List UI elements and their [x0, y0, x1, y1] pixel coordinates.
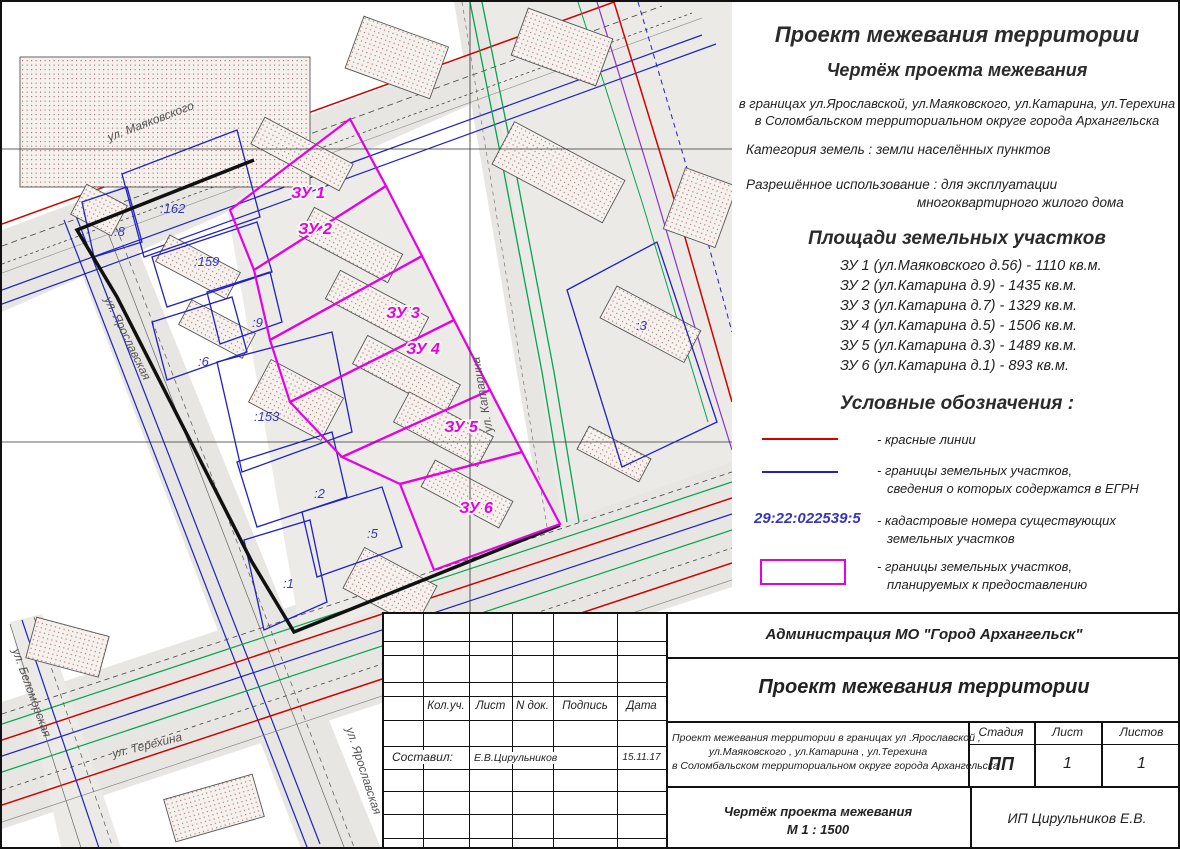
col-header-kol: Кол.уч. — [423, 700, 469, 712]
cadastral-label-3: :3 — [636, 318, 648, 333]
legend-magenta-swatch — [760, 559, 846, 585]
project-desc-2: ул.Маяковского , ул.Катарина , ул.Терехи… — [672, 746, 964, 758]
project-title: Проект межевания территории — [666, 676, 1180, 699]
compiled-label: Составил: — [390, 750, 455, 764]
col-header-list: Лист — [469, 700, 512, 712]
firm-name: ИП Цирульников Е.В. — [972, 810, 1180, 826]
legend-cadastral-sample: 29:22:022539:5 — [754, 510, 861, 527]
legend-cadastral-label-2: земельных участков — [887, 531, 1015, 546]
legend-heading: Условные обозначения : — [732, 393, 1180, 415]
area-item-3: ЗУ 3 (ул.Катарина д.7) - 1329 кв.м. — [840, 298, 1077, 314]
permitted-use-line1: Разрешённое использование : для эксплуат… — [746, 177, 1057, 192]
sheets-value: 1 — [1101, 755, 1180, 773]
sheets-label: Листов — [1101, 725, 1180, 739]
plot-label-zu6: ЗУ 6 — [459, 500, 493, 517]
boundaries-line2: в Соломбальском территориальном округе г… — [732, 113, 1180, 128]
legend-blue-label-2: сведения о которых содержатся в ЕГРН — [887, 481, 1139, 496]
plot-label-zu2: ЗУ 2 — [298, 221, 332, 238]
legend-red-line-swatch — [762, 438, 838, 440]
area-item-1: ЗУ 1 (ул.Маяковского д.56) - 1110 кв.м. — [840, 258, 1102, 274]
drawing-name: Чертёж проекта межевания — [666, 804, 970, 819]
plot-label-zu1: ЗУ 1 — [291, 185, 325, 202]
info-panel: Проект межевания территории Чертёж проек… — [732, 2, 1180, 612]
boundaries-line1: в границах ул.Ярославской, ул.Маяковског… — [732, 96, 1180, 111]
cadastral-label-6: :6 — [198, 354, 210, 369]
compiled-name: Е.В.Цирульников — [472, 752, 559, 764]
legend-blue-label-1: - границы земельных участков, — [877, 463, 1072, 478]
project-desc-3: в Соломбальском территориальном округе г… — [672, 760, 964, 772]
title-block: Кол.уч. Лист N док. Подпись Дата Состави… — [382, 612, 1180, 849]
legend-blue-line-swatch — [762, 471, 838, 473]
sheet-value: 1 — [1034, 755, 1101, 773]
area-item-4: ЗУ 4 (ул.Катарина д.5) - 1506 кв.м. — [840, 318, 1077, 334]
plot-label-zu5: ЗУ 5 — [444, 419, 479, 436]
cadastral-label-162: :162 — [160, 201, 186, 216]
cadastral-label-1: :1 — [283, 576, 294, 591]
col-header-sign: Подпись — [553, 700, 617, 712]
cadastral-label-153: :153 — [254, 409, 280, 424]
page-subtitle: Чертёж проекта межевания — [732, 60, 1180, 81]
area-item-5: ЗУ 5 (ул.Катарина д.3) - 1489 кв.м. — [840, 338, 1077, 354]
page-title: Проект межевания территории — [732, 22, 1180, 48]
col-header-date: Дата — [617, 700, 666, 712]
cadastral-label-9: :9 — [252, 315, 263, 330]
cadastral-label-2: :2 — [314, 486, 326, 501]
legend-red-label: - красные линии — [877, 432, 976, 447]
drawing-scale: М 1 : 1500 — [666, 822, 970, 837]
drawing-sheet: ул. Маяковского ул. Ярославская ул. Ката… — [0, 0, 1180, 849]
project-desc-1: Проект межевания территории в границах у… — [672, 732, 964, 744]
col-header-ndoc: N док. — [512, 700, 553, 712]
legend-magenta-label-1: - границы земельных участков, — [877, 559, 1072, 574]
legend-cadastral-label-1: - кадастровые номера существующих — [877, 513, 1116, 528]
compiled-date: 15.11.17 — [617, 752, 666, 763]
cadastral-label-159: :159 — [194, 254, 219, 269]
org-name: Администрация МО "Город Архангельск" — [666, 626, 1180, 643]
legend-magenta-label-2: планируемых к предоставлению — [887, 577, 1087, 592]
permitted-use-line2: многоквартирного жилого дома — [917, 195, 1124, 210]
plot-label-zu3: ЗУ 3 — [386, 305, 420, 322]
stage-label: Стадия — [968, 725, 1034, 739]
stage-value: ПП — [968, 754, 1034, 775]
area-item-2: ЗУ 2 (ул.Катарина д.9) - 1435 кв.м. — [840, 278, 1077, 294]
plot-label-zu4: ЗУ 4 — [406, 341, 440, 358]
areas-heading: Площади земельных участков — [732, 228, 1180, 250]
cadastral-label-8: :8 — [114, 224, 126, 239]
sheet-label: Лист — [1034, 725, 1101, 739]
cadastral-label-5: :5 — [367, 526, 379, 541]
land-category: Категория земель : земли населённых пунк… — [746, 142, 1051, 157]
area-item-6: ЗУ 6 (ул.Катарина д.1) - 893 кв.м. — [840, 358, 1069, 374]
